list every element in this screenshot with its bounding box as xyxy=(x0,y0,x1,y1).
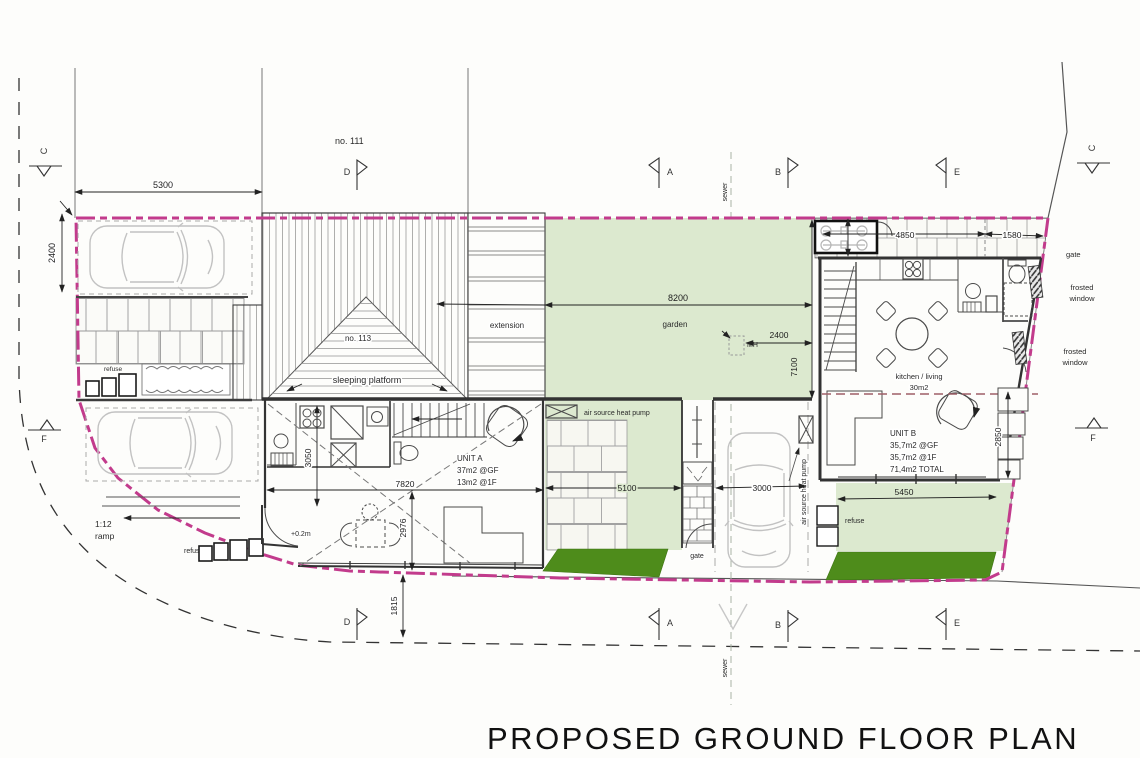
unit-b-stairs xyxy=(824,262,856,372)
dim-walk-b: 1580 xyxy=(1003,230,1022,240)
unit-a-name: UNIT A xyxy=(457,454,483,463)
marker-letter: A xyxy=(667,618,673,628)
refuse-label-unit-b: refuse xyxy=(845,518,865,525)
house-113-label: no. 113 xyxy=(345,334,372,343)
unit-a-door-arc xyxy=(265,508,298,546)
section-marker-c-left: C xyxy=(29,147,62,176)
dim-park-width: 3000 xyxy=(753,483,772,493)
section-marker-a-top: A xyxy=(649,158,673,188)
house-113-annex xyxy=(233,305,262,400)
refuse-bins-front xyxy=(86,374,136,396)
dim-mh-offset: 2400 xyxy=(770,330,789,340)
marker-letter: E xyxy=(954,618,960,628)
unit-b-name: UNIT B xyxy=(890,429,916,438)
marker-letter: C xyxy=(39,147,49,154)
gate-post xyxy=(692,406,702,458)
toilet xyxy=(400,446,418,461)
dim-garden-width: 8200 xyxy=(668,293,688,303)
section-marker-d-bottom: D xyxy=(344,608,367,640)
unit-b-total: 71,4m2 TOTAL xyxy=(890,465,944,474)
section-marker-d-top: D xyxy=(344,160,367,190)
unit-b-sofa xyxy=(827,391,882,465)
page-title: PROPOSED GROUND FLOOR PLAN xyxy=(487,721,1079,756)
kitchen-living-label: kitchen / living xyxy=(895,372,942,381)
section-marker-f-left: F xyxy=(28,420,61,444)
gate-label-top-right: gate xyxy=(1066,250,1081,259)
car-1 xyxy=(90,223,224,291)
frosted-window-2a: frosted xyxy=(1064,347,1087,356)
floor-plan-drawing: sewer sewer no. 113 sleeping platform ex… xyxy=(0,0,1140,758)
sleeping-platform-label: sleeping platform xyxy=(333,375,402,385)
dim-terrace-b: 2850 xyxy=(993,427,1003,446)
site-edge-top-right xyxy=(1048,62,1067,218)
unit-a-kitchen xyxy=(267,403,324,466)
car-3 xyxy=(725,433,793,567)
dim-walk-a: 4850 xyxy=(896,230,915,240)
unit-b-ff: 35,7m2 @1F xyxy=(890,453,936,462)
sewer-label-top: sewer xyxy=(722,182,729,201)
unit-b-dining xyxy=(875,300,948,368)
dim-garden-depth: 7100 xyxy=(789,357,799,376)
unit-a-sofa xyxy=(444,507,523,563)
ashp-label-unit-a: air source heat pump xyxy=(584,410,650,417)
section-marker-e-bottom: E xyxy=(936,608,960,640)
marker-letter: F xyxy=(1090,433,1096,443)
gate-corridor: gate xyxy=(682,400,713,560)
marker-letter: B xyxy=(775,620,781,630)
dim-unit-a-living: 2976 xyxy=(398,518,408,537)
sewer-flow-chevron xyxy=(719,604,747,629)
frosted-windows: frosted window frosted window gate xyxy=(1012,250,1095,367)
level-label: +0.2m xyxy=(291,531,311,538)
corridor-path xyxy=(683,486,712,543)
unit-a-gf: 37m2 @GF xyxy=(457,466,499,475)
dim-bay-depth: 2400 xyxy=(47,243,57,263)
dim-front-offset: 1815 xyxy=(389,596,399,615)
marker-letter: A xyxy=(667,167,673,177)
marker-letter: C xyxy=(1087,144,1097,151)
section-marker-b-bottom: B xyxy=(775,610,798,642)
hedge-unit-b xyxy=(826,552,996,580)
house-113-roof: no. 113 sleeping platform xyxy=(233,213,468,400)
patio-paving xyxy=(547,420,627,550)
refuse-bins-bottom xyxy=(199,539,263,561)
marker-letter: F xyxy=(41,434,47,444)
section-marker-a-bottom: A xyxy=(649,608,673,640)
dim-unit-a-kitchen: 3050 xyxy=(303,448,313,467)
marker-letter: D xyxy=(344,617,351,627)
sewer-label-bottom: sewer xyxy=(722,658,729,677)
ashp-label-unit-b: air source heat pump xyxy=(801,459,808,525)
unit-a: +0.2m UNIT A 37m2 @GF 13m2 @1F xyxy=(262,399,812,570)
refuse-bins-unit-b xyxy=(817,506,838,546)
unit-a-dining xyxy=(341,504,401,547)
gate-label: gate xyxy=(690,553,704,560)
section-marker-e-top: E xyxy=(936,158,960,188)
dim-patio-a: 5100 xyxy=(618,483,637,493)
dim-unit-a-width: 7820 xyxy=(396,479,415,489)
ramp-label: ramp xyxy=(95,531,115,541)
unit-a-ff: 13m2 @1F xyxy=(457,478,497,487)
garden-label: garden xyxy=(663,320,688,329)
frosted-window-2b: window xyxy=(1061,358,1088,367)
marker-letter: B xyxy=(775,167,781,177)
marker-letter: D xyxy=(344,167,351,177)
front-paving xyxy=(76,298,244,364)
kitchen-area-label: 30m2 xyxy=(910,383,929,392)
hedge-unit-a xyxy=(543,549,668,577)
unit-b-patio xyxy=(836,483,1013,551)
dim-patio-b: 5450 xyxy=(895,487,914,497)
section-marker-f-right: F xyxy=(1075,418,1108,443)
unit-a-armchair xyxy=(483,402,530,449)
garden-area xyxy=(545,218,812,400)
frosted-window-1a: frosted xyxy=(1071,283,1094,292)
plan-svg: sewer sewer no. 113 sleeping platform ex… xyxy=(0,0,1140,758)
hedge-planter-front xyxy=(142,364,230,395)
frosted-window-1b: window xyxy=(1068,294,1095,303)
marker-letter: E xyxy=(954,167,960,177)
house-111-label: no. 111 xyxy=(335,136,364,146)
unit-a-stairs xyxy=(394,403,484,437)
ramp-ratio-label: 1:12 xyxy=(95,519,112,529)
unit-b-gf: 35,7m2 @GF xyxy=(890,441,938,450)
unit-b-kitchen xyxy=(856,258,1003,312)
extension-label: extension xyxy=(490,321,524,330)
extension-roof: extension xyxy=(468,213,545,400)
section-marker-b-top: B xyxy=(775,158,798,188)
dim-plot-width: 5300 xyxy=(153,180,173,190)
section-marker-c-right: C xyxy=(1077,144,1110,173)
refuse-label-front: refuse xyxy=(104,366,122,373)
car-2 xyxy=(98,409,232,477)
